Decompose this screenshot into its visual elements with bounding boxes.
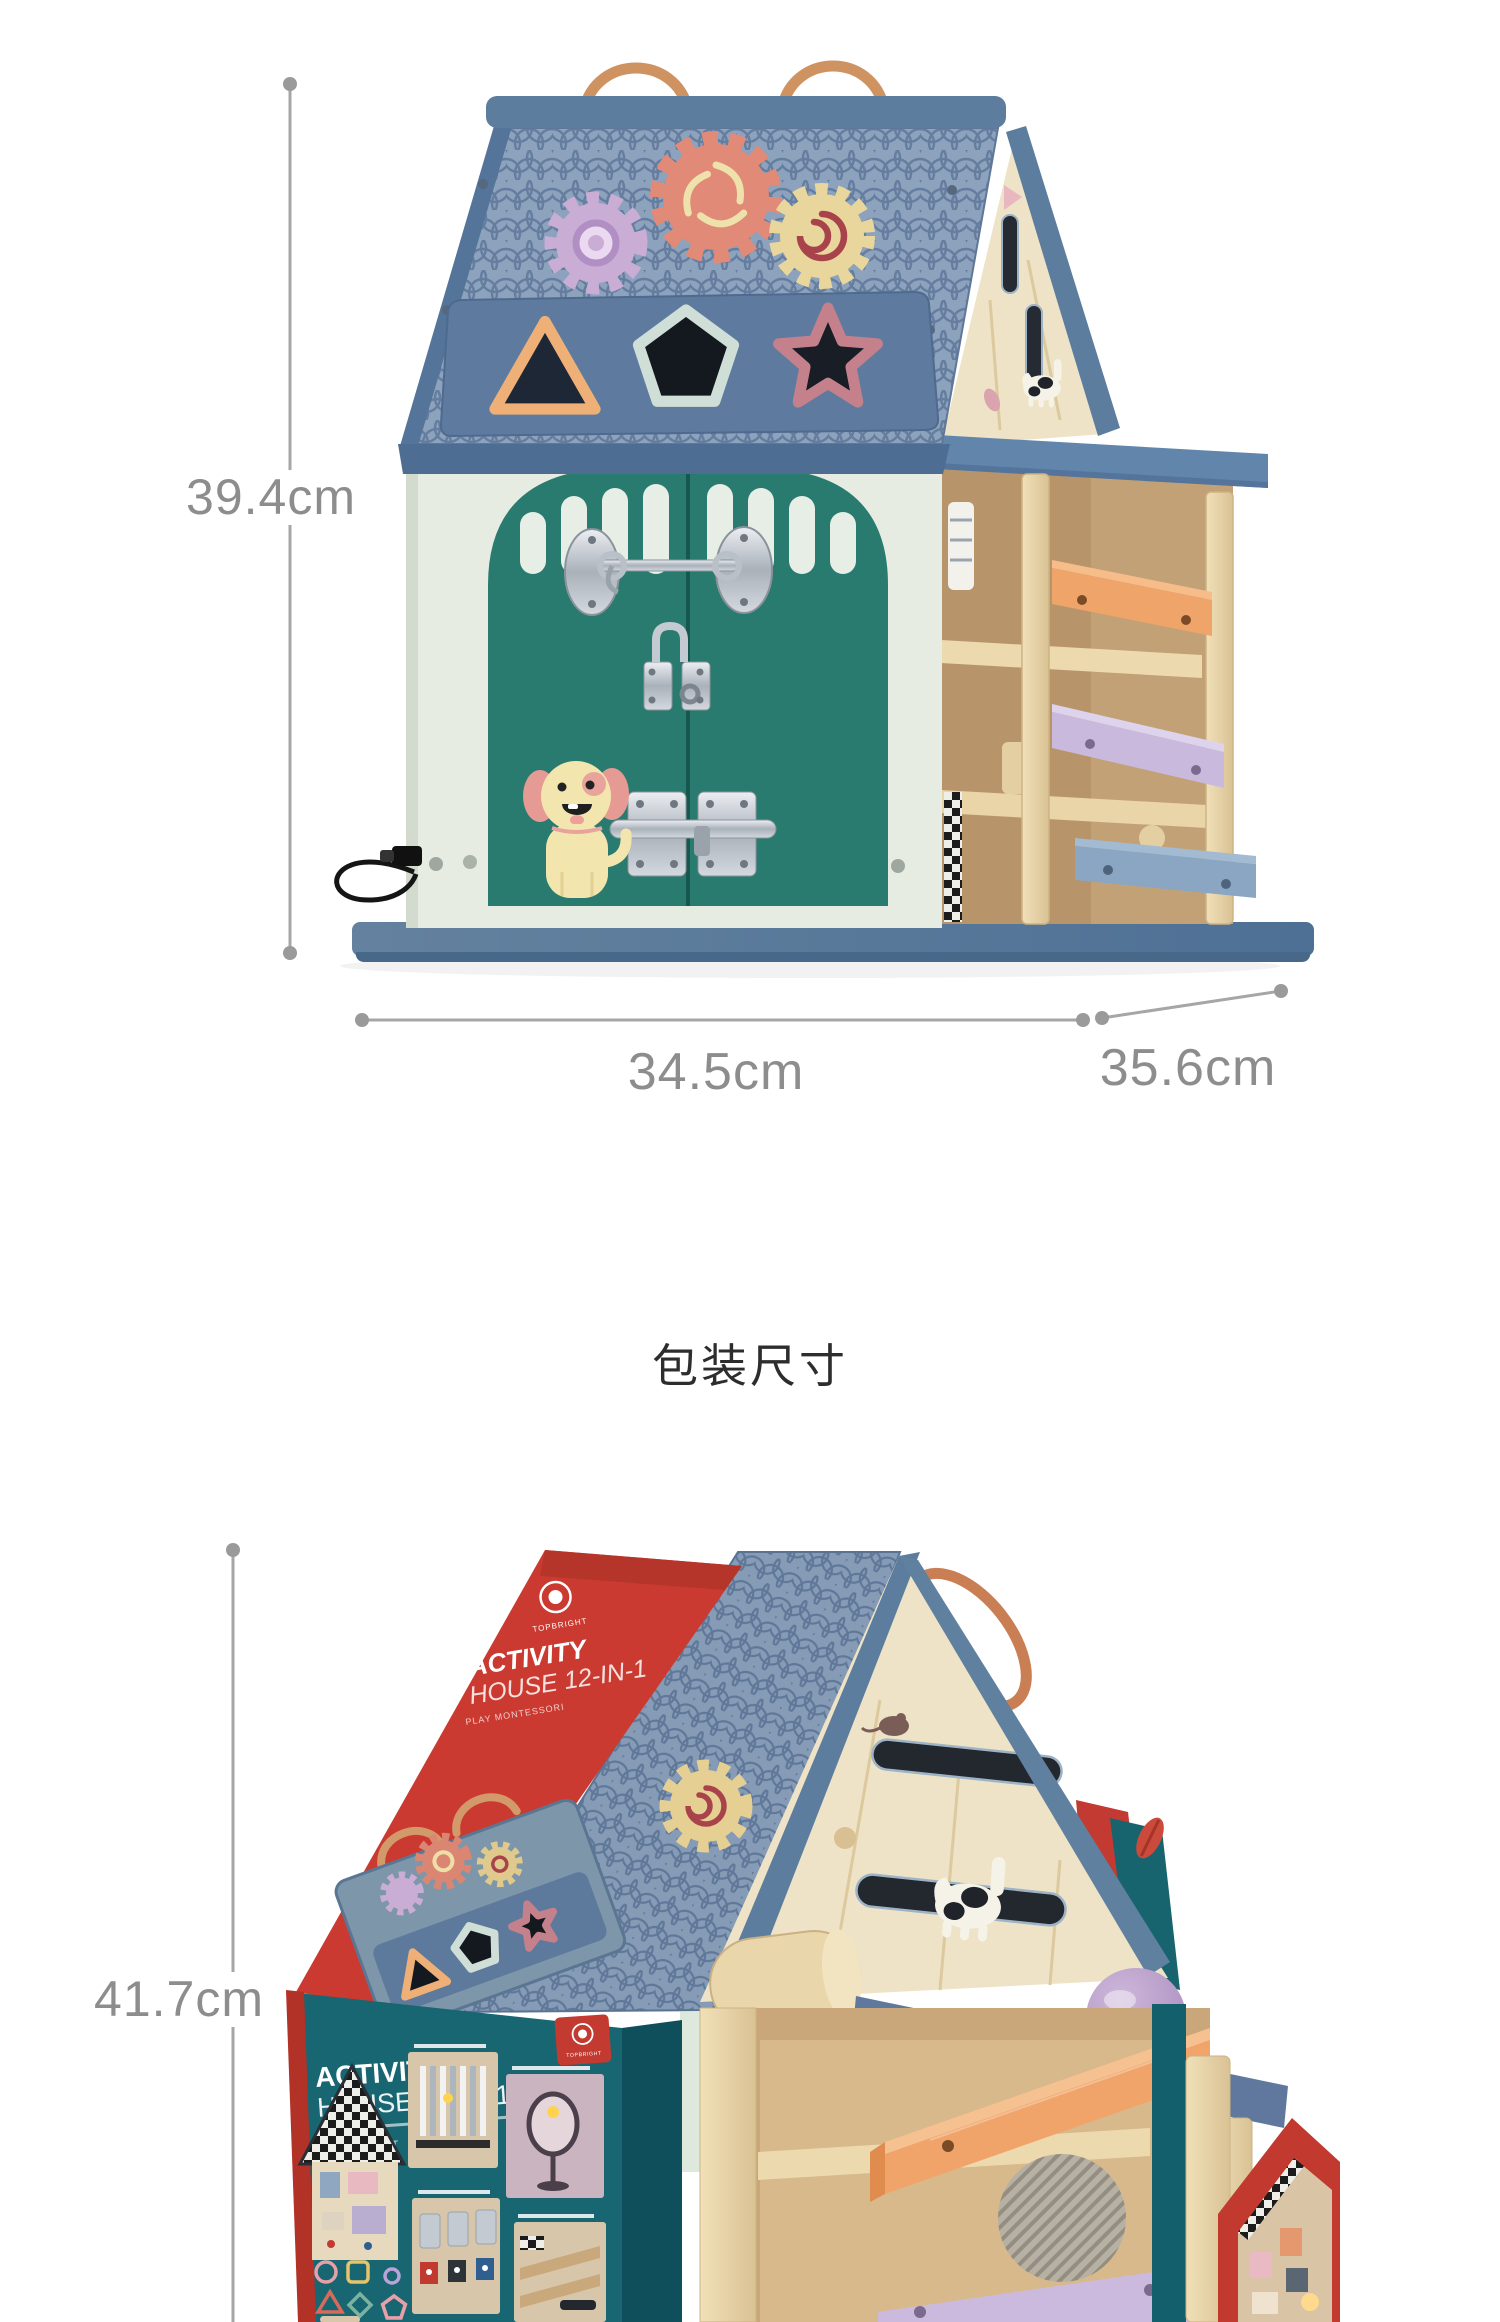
tile-ball-track bbox=[514, 2222, 606, 2322]
retail-box: TOPBRIGHT ACTIVITY HOUSE 12-IN-1 CONTENT bbox=[286, 1990, 682, 2322]
box-front-badge: TOPBRIGHT bbox=[554, 2014, 611, 2066]
tile-caption bbox=[414, 2044, 486, 2048]
width-dimension-line bbox=[355, 1013, 1090, 1027]
tile-mirror-lamp bbox=[506, 2074, 604, 2198]
roof-ridge-cap bbox=[486, 96, 1006, 128]
tile-switch-board bbox=[412, 2198, 500, 2314]
gable-track-slot bbox=[1002, 215, 1018, 293]
box-side-face bbox=[622, 2020, 682, 2322]
tile-caption bbox=[418, 2190, 490, 2194]
depth-dimension-label: 35.6cm bbox=[1088, 1040, 1288, 1097]
ladder-slats bbox=[948, 502, 974, 590]
wood-knob bbox=[834, 1827, 856, 1849]
speaker-circle bbox=[998, 2154, 1126, 2282]
house-base bbox=[352, 922, 1314, 962]
checker-flag-strip bbox=[944, 792, 962, 922]
front-doors bbox=[488, 468, 888, 906]
top-house-figure bbox=[283, 66, 1314, 1027]
box-height-dimension-line bbox=[226, 1543, 240, 2322]
packaged-house-figure: TOPBRIGHT ACTIVITY HOUSE 12-IN-1 PLAY MO… bbox=[226, 1543, 1340, 2322]
depth-dimension-line bbox=[1095, 984, 1288, 1025]
gable-track-slot bbox=[1026, 305, 1042, 383]
house-side-wood bbox=[680, 2004, 1230, 2322]
product-dimension-page: TOPBRIGHT ACTIVITY HOUSE 12-IN-1 PLAY MO… bbox=[0, 0, 1500, 2322]
width-dimension-label: 34.5cm bbox=[616, 1044, 816, 1101]
tile-caption bbox=[512, 2066, 590, 2070]
tile-caption bbox=[518, 2214, 594, 2218]
packaging-section-heading: 包装尺寸 bbox=[0, 1330, 1500, 1396]
height-dimension-label: 39.4cm bbox=[170, 470, 372, 525]
box-height-dimension-label: 41.7cm bbox=[78, 1972, 280, 2027]
roof bbox=[398, 66, 1006, 474]
tile-xylophone bbox=[408, 2052, 498, 2168]
